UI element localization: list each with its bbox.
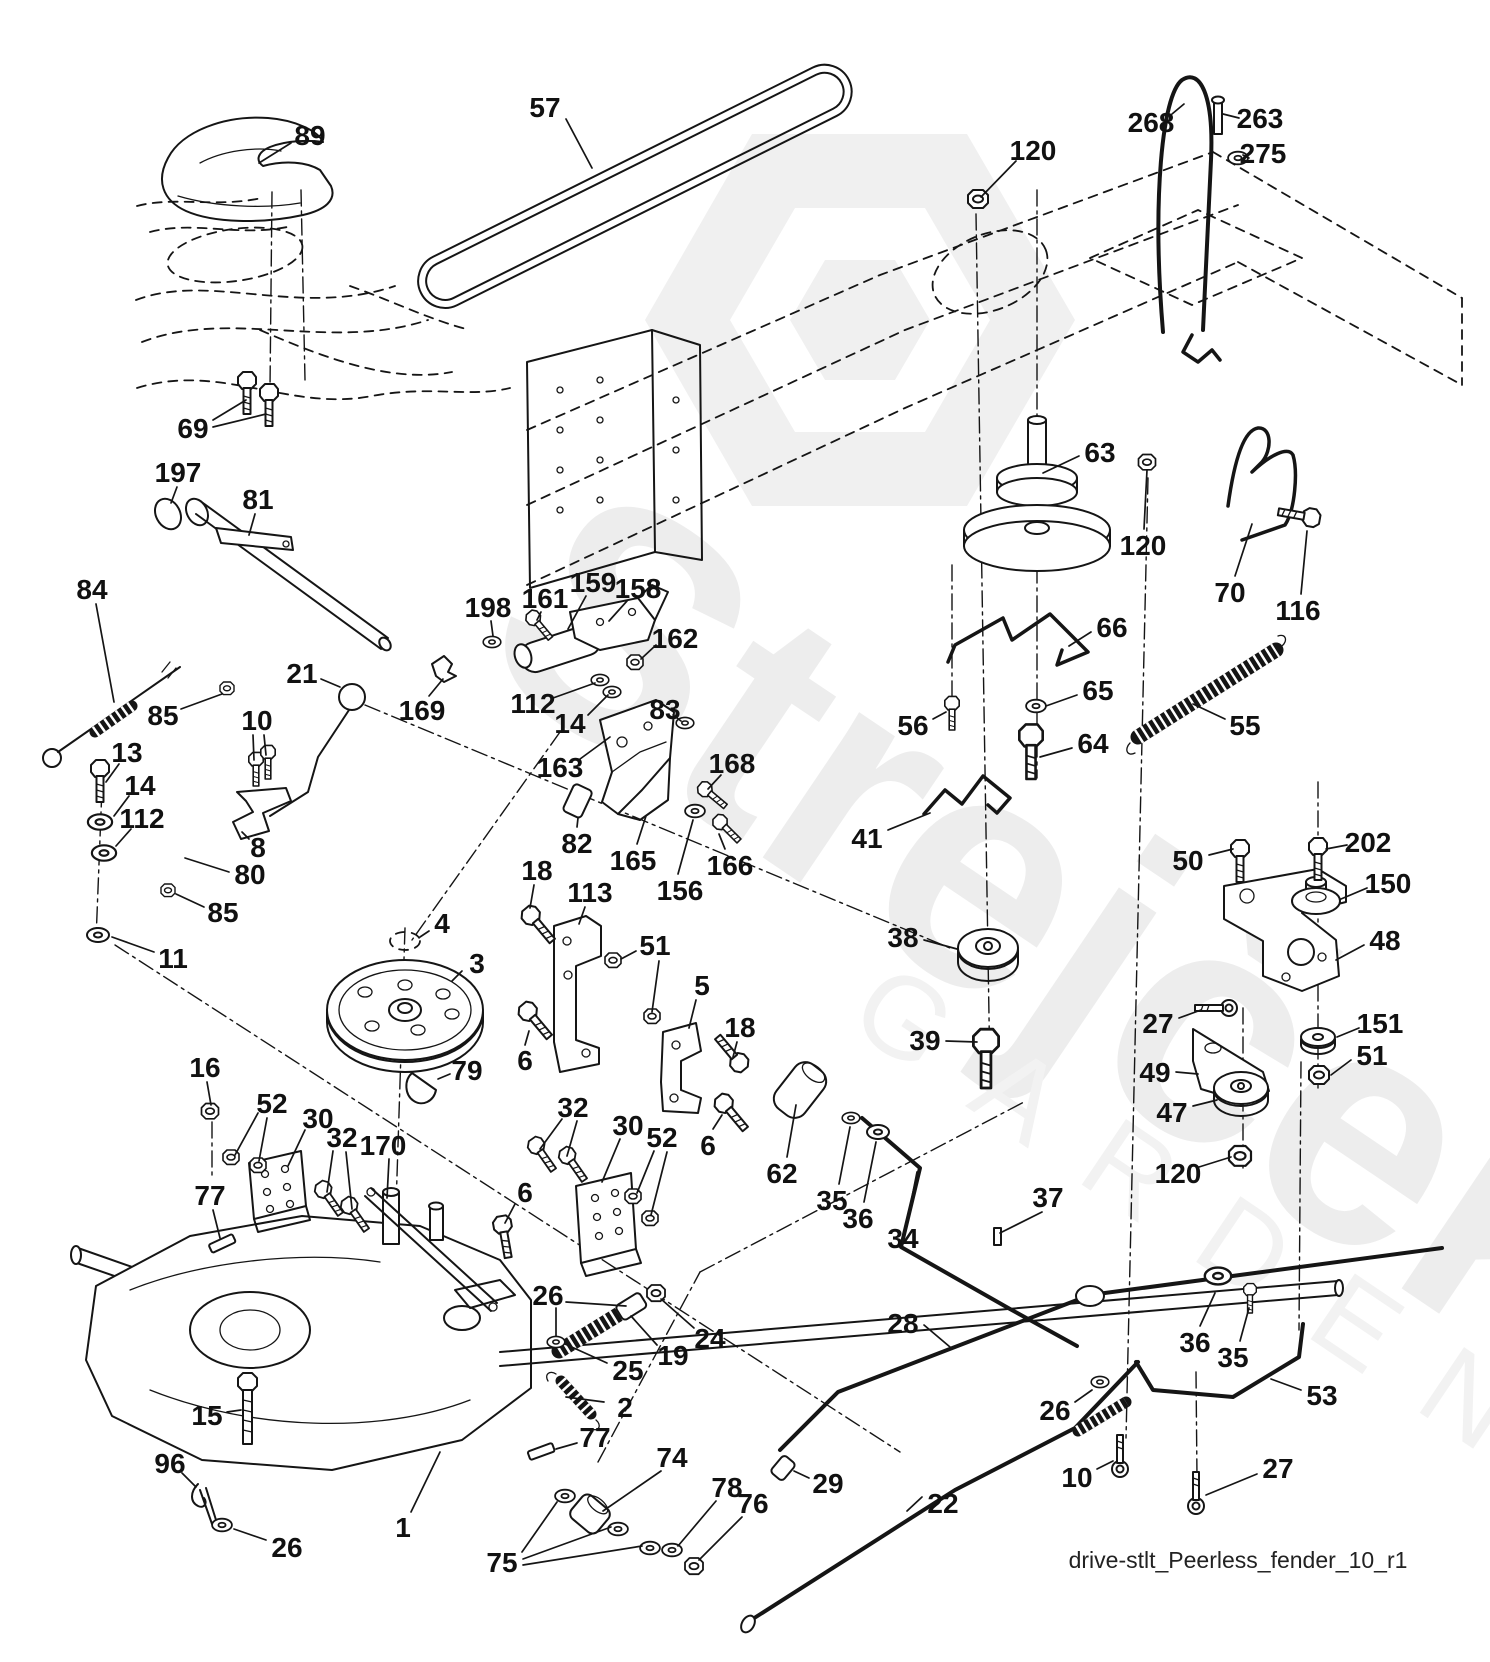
part-label-24: 24 bbox=[694, 1323, 726, 1354]
part-label-57: 57 bbox=[529, 92, 560, 123]
part-label-159: 159 bbox=[570, 567, 617, 598]
part-label-52: 52 bbox=[646, 1122, 677, 1153]
part-label-120: 120 bbox=[1010, 135, 1057, 166]
leader-line-35 bbox=[839, 1127, 850, 1184]
part-label-35: 35 bbox=[816, 1185, 847, 1216]
leader-line-69 bbox=[213, 400, 246, 420]
part-label-166: 166 bbox=[707, 850, 754, 881]
part-label-1: 1 bbox=[395, 1512, 411, 1543]
part-label-26: 26 bbox=[271, 1532, 302, 1563]
part-label-27: 27 bbox=[1142, 1008, 1173, 1039]
shift-rod-81-drawing bbox=[150, 494, 393, 652]
part-label-85: 85 bbox=[147, 700, 178, 731]
part-label-170: 170 bbox=[360, 1130, 407, 1161]
part-label-82: 82 bbox=[561, 828, 592, 859]
part-label-268: 268 bbox=[1128, 107, 1175, 138]
leader-line-82 bbox=[577, 818, 578, 827]
part-label-29: 29 bbox=[812, 1468, 843, 1499]
leader-line-52 bbox=[651, 1152, 667, 1215]
leader-line-11 bbox=[112, 937, 154, 952]
part-label-38: 38 bbox=[887, 922, 918, 953]
part-label-116: 116 bbox=[1275, 595, 1320, 626]
leader-line-26 bbox=[566, 1302, 626, 1306]
cotter-96 bbox=[192, 1484, 216, 1524]
part-label-22: 22 bbox=[927, 1488, 958, 1519]
part-label-156: 156 bbox=[657, 875, 704, 906]
leader-line-75 bbox=[523, 1546, 642, 1565]
bracket-5 bbox=[661, 1023, 701, 1113]
leader-line-26 bbox=[234, 1529, 266, 1540]
part-label-163: 163 bbox=[537, 752, 584, 783]
part-label-202: 202 bbox=[1345, 827, 1392, 858]
leader-line-197 bbox=[171, 487, 177, 503]
part-label-11: 11 bbox=[158, 943, 188, 974]
leader-line-26 bbox=[1075, 1390, 1092, 1402]
part-label-66: 66 bbox=[1096, 612, 1127, 643]
part-label-25: 25 bbox=[612, 1355, 643, 1386]
part-label-52: 52 bbox=[256, 1088, 287, 1119]
leader-line-85 bbox=[176, 894, 204, 907]
part-label-70: 70 bbox=[1214, 577, 1245, 608]
part-label-6: 6 bbox=[517, 1045, 533, 1076]
leader-line-27 bbox=[1206, 1474, 1257, 1495]
part-label-51: 51 bbox=[639, 930, 670, 961]
part-label-13: 13 bbox=[111, 737, 142, 768]
leader-line-22 bbox=[907, 1497, 922, 1511]
part-label-197: 197 bbox=[155, 457, 202, 488]
leader-line-169 bbox=[429, 679, 443, 696]
part-label-28: 28 bbox=[887, 1308, 918, 1339]
leader-line-51 bbox=[621, 951, 636, 959]
part-label-85: 85 bbox=[207, 897, 238, 928]
part-label-112: 112 bbox=[119, 803, 164, 834]
diagram-filename: drive-stlt_Peerless_fender_10_r1 bbox=[1069, 1547, 1408, 1573]
part-label-80: 80 bbox=[234, 859, 265, 890]
part-label-162: 162 bbox=[652, 623, 699, 654]
part-label-84: 84 bbox=[76, 574, 108, 605]
part-label-18: 18 bbox=[724, 1012, 755, 1043]
part-label-168: 168 bbox=[709, 748, 756, 779]
part-label-64: 64 bbox=[1077, 728, 1109, 759]
part-label-151: 151 bbox=[1357, 1008, 1404, 1039]
part-label-79: 79 bbox=[451, 1055, 482, 1086]
leader-line-70 bbox=[1235, 524, 1252, 576]
part-label-16: 16 bbox=[189, 1052, 220, 1083]
fender-89-drawing bbox=[162, 118, 333, 388]
leader-line-34 bbox=[907, 1172, 917, 1222]
part-label-14: 14 bbox=[124, 770, 156, 801]
part-label-10: 10 bbox=[241, 705, 272, 736]
bracket-113 bbox=[554, 916, 601, 1072]
part-label-55: 55 bbox=[1229, 710, 1260, 741]
leader-line-52 bbox=[637, 1151, 654, 1193]
part-label-165: 165 bbox=[610, 845, 657, 876]
part-label-150: 150 bbox=[1365, 868, 1412, 899]
part-label-35: 35 bbox=[1217, 1342, 1248, 1373]
leader-line-57 bbox=[566, 119, 592, 168]
part-label-4: 4 bbox=[434, 908, 450, 939]
part-label-49: 49 bbox=[1139, 1057, 1170, 1088]
leader-line-85 bbox=[181, 694, 222, 709]
part-label-50: 50 bbox=[1172, 845, 1203, 876]
part-label-36: 36 bbox=[1179, 1327, 1210, 1358]
leader-line-80 bbox=[185, 858, 229, 872]
leader-line-37 bbox=[1000, 1212, 1042, 1233]
leader-line-53 bbox=[1271, 1379, 1301, 1390]
part-label-74: 74 bbox=[656, 1442, 688, 1473]
part-label-48: 48 bbox=[1369, 925, 1400, 956]
part-label-37: 37 bbox=[1032, 1182, 1063, 1213]
part-label-26: 26 bbox=[532, 1280, 563, 1311]
leader-line-52 bbox=[235, 1113, 258, 1155]
exploded-parts-diagram: Strejček GARDEN bbox=[0, 0, 1490, 1662]
part-label-198: 198 bbox=[465, 592, 512, 623]
part-label-76: 76 bbox=[737, 1488, 768, 1519]
leader-line-39 bbox=[946, 1041, 977, 1042]
leader-line-77 bbox=[556, 1443, 577, 1449]
leader-line-76 bbox=[699, 1517, 742, 1560]
part-label-77: 77 bbox=[579, 1422, 610, 1453]
part-label-65: 65 bbox=[1082, 675, 1113, 706]
part-label-263: 263 bbox=[1237, 103, 1284, 134]
part-label-39: 39 bbox=[909, 1025, 940, 1056]
part-label-56: 56 bbox=[897, 710, 928, 741]
leader-line-51 bbox=[652, 961, 659, 1012]
watermark: Strejček GARDEN bbox=[430, 134, 1490, 1505]
leader-line-116 bbox=[1301, 531, 1307, 594]
part-label-18: 18 bbox=[521, 855, 552, 886]
part-label-34: 34 bbox=[887, 1223, 919, 1254]
part-label-2: 2 bbox=[617, 1392, 633, 1423]
part-label-113: 113 bbox=[567, 877, 612, 908]
part-label-62: 62 bbox=[766, 1158, 797, 1189]
part-label-112: 112 bbox=[510, 688, 555, 719]
part-label-89: 89 bbox=[294, 120, 325, 151]
leader-line-52 bbox=[259, 1118, 267, 1161]
part-label-6: 6 bbox=[517, 1177, 533, 1208]
part-label-5: 5 bbox=[694, 970, 710, 1001]
leader-line-74 bbox=[603, 1471, 661, 1511]
leader-line-1 bbox=[411, 1452, 440, 1512]
leader-line-36 bbox=[864, 1142, 876, 1202]
part-label-158: 158 bbox=[615, 573, 662, 604]
part-label-63: 63 bbox=[1084, 437, 1115, 468]
part-label-10: 10 bbox=[1061, 1462, 1092, 1493]
leader-line-18 bbox=[530, 885, 534, 908]
bushing-29 bbox=[770, 1454, 796, 1481]
part-label-51: 51 bbox=[1356, 1040, 1387, 1071]
part-label-96: 96 bbox=[154, 1448, 185, 1479]
clutch-rod-70 bbox=[1228, 428, 1295, 540]
leader-line-6 bbox=[525, 1031, 529, 1045]
part-label-83: 83 bbox=[649, 694, 680, 725]
part-label-14: 14 bbox=[554, 708, 586, 739]
part-label-161: 161 bbox=[522, 583, 569, 614]
part-label-30: 30 bbox=[612, 1110, 643, 1141]
part-label-3: 3 bbox=[469, 948, 485, 979]
part-label-77: 77 bbox=[194, 1180, 225, 1211]
part-label-41: 41 bbox=[851, 823, 882, 854]
part-label-47: 47 bbox=[1156, 1097, 1187, 1128]
part-label-81: 81 bbox=[242, 484, 273, 515]
spacer-62 bbox=[769, 1056, 832, 1123]
part-label-53: 53 bbox=[1306, 1380, 1337, 1411]
part-label-75: 75 bbox=[486, 1547, 517, 1578]
part-label-275: 275 bbox=[1240, 138, 1287, 169]
leader-line-75 bbox=[522, 1502, 557, 1552]
part-label-120: 120 bbox=[1120, 530, 1167, 561]
leader-line-79 bbox=[438, 1074, 450, 1079]
part-label-69: 69 bbox=[177, 413, 208, 444]
leader-line-10 bbox=[1097, 1461, 1113, 1469]
extension-spring-55 bbox=[1127, 635, 1286, 754]
part-label-32: 32 bbox=[557, 1092, 588, 1123]
part-label-15: 15 bbox=[191, 1400, 222, 1431]
part-label-6: 6 bbox=[700, 1130, 716, 1161]
part-label-21: 21 bbox=[286, 658, 317, 689]
leader-line-29 bbox=[794, 1471, 809, 1478]
leader-line-10 bbox=[253, 735, 254, 760]
part-label-27: 27 bbox=[1262, 1453, 1293, 1484]
part-label-169: 169 bbox=[399, 695, 446, 726]
leader-line-21 bbox=[321, 679, 340, 687]
part-label-32: 32 bbox=[326, 1122, 357, 1153]
part-label-19: 19 bbox=[657, 1340, 688, 1371]
leader-line-16 bbox=[207, 1082, 211, 1105]
leader-line-24 bbox=[661, 1299, 694, 1328]
leader-line-84 bbox=[96, 604, 114, 702]
leader-line-78 bbox=[678, 1501, 716, 1546]
pin-37 bbox=[994, 1228, 1001, 1245]
clip-169 bbox=[432, 656, 456, 682]
leader-line-4 bbox=[420, 931, 429, 937]
leader-line-55 bbox=[1193, 704, 1225, 719]
leader-line-32 bbox=[540, 1119, 562, 1149]
part-label-26: 26 bbox=[1039, 1395, 1070, 1426]
part-label-120: 120 bbox=[1155, 1158, 1202, 1189]
leader-line-6 bbox=[713, 1115, 722, 1129]
